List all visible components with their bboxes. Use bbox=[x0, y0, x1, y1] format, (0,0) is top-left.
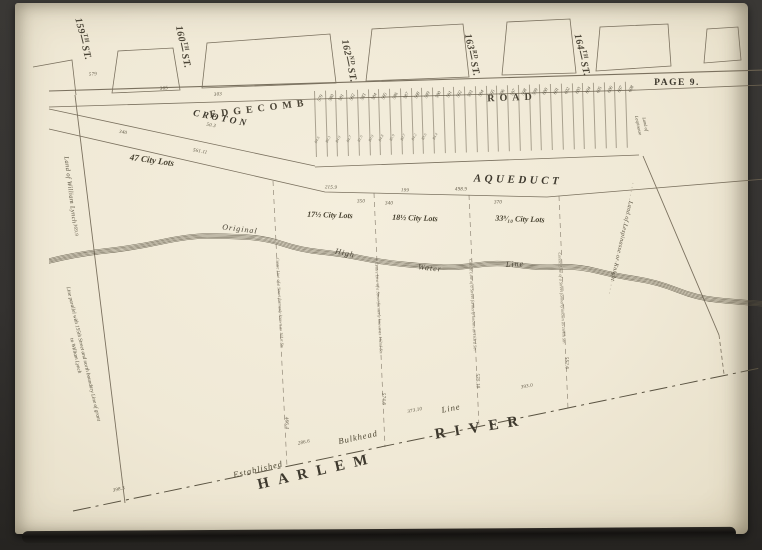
lot-cell: 608 bbox=[625, 81, 638, 147]
city-lots-18: 18½ City Lots bbox=[392, 213, 438, 224]
lot-depth: 84.7 bbox=[345, 134, 353, 142]
high-water-line bbox=[49, 236, 762, 304]
scanned-atlas-page: 159THST. 160THST. 162NDST. 163RDST. 164T… bbox=[0, 0, 762, 550]
lot-number: 596 bbox=[499, 88, 507, 96]
lot-number: 589 bbox=[424, 91, 432, 99]
street-suffix: ST. bbox=[468, 61, 482, 78]
lot-number: 587 bbox=[402, 91, 410, 99]
right-boundary-dashed bbox=[719, 335, 724, 374]
lot-number: 579 bbox=[316, 94, 324, 102]
street-centre-dim-2: 574.6 bbox=[380, 393, 386, 405]
measurement: 350 bbox=[357, 200, 365, 205]
measurement: 340 bbox=[385, 202, 393, 207]
lot-number: 586 bbox=[391, 92, 399, 100]
lot-number: 600 bbox=[541, 87, 549, 95]
lot-number: 605 bbox=[595, 85, 603, 93]
block-outline bbox=[366, 24, 469, 81]
street-centre-dim-4: 552.6 bbox=[563, 357, 569, 369]
block-outline bbox=[202, 34, 336, 88]
lot-number: 582 bbox=[348, 93, 356, 101]
lot-depth: 84.8 bbox=[377, 134, 385, 142]
map-linework bbox=[15, 3, 762, 550]
lot-number: 608 bbox=[627, 85, 635, 93]
block-outline bbox=[596, 24, 671, 71]
lot-number: 603 bbox=[574, 86, 582, 94]
lot-number: 590 bbox=[434, 90, 442, 98]
street-centre-dim-3: 575.10 bbox=[474, 373, 480, 388]
measurement: 498.9 bbox=[455, 188, 467, 193]
city-lots-33: 33⁹⁄₁₀ City Lots bbox=[495, 214, 545, 225]
lynch-boundary-line bbox=[75, 95, 125, 503]
lot-number: 591 bbox=[445, 90, 453, 98]
measurement: 340 bbox=[119, 130, 128, 136]
block-outline bbox=[502, 19, 576, 75]
measurement: 370 bbox=[494, 201, 502, 206]
lot-number: 583 bbox=[359, 92, 367, 100]
block-outline bbox=[112, 48, 180, 93]
measurement: 303 bbox=[214, 92, 223, 98]
lot-depth: 81.6 bbox=[356, 134, 364, 142]
lot-depth: 83.6 bbox=[420, 132, 428, 140]
lot-number: 585 bbox=[381, 92, 389, 100]
lot-strip: 579 84.6 580 80.3 581 84.9 582 84.7 bbox=[314, 81, 638, 157]
street-suffix: ST. bbox=[345, 67, 359, 84]
lot-number: 606 bbox=[606, 85, 614, 93]
lot-depth: 84.9 bbox=[335, 135, 343, 143]
aqueduct-upper-line bbox=[49, 109, 315, 166]
lot-number: 597 bbox=[509, 88, 517, 96]
lot-number: 604 bbox=[584, 86, 592, 94]
lot-number: 588 bbox=[413, 91, 421, 99]
right-boundary-line bbox=[643, 156, 719, 335]
bulkhead-line bbox=[73, 367, 762, 511]
block-outline bbox=[33, 60, 76, 95]
lot-strip-bottom-line bbox=[315, 155, 639, 167]
lot-depth: 84.6 bbox=[313, 135, 321, 143]
lot-number: 598 bbox=[520, 88, 528, 96]
measurement: 215.9 bbox=[325, 185, 337, 190]
measurement: 579 bbox=[89, 72, 98, 78]
water-word-line: Line bbox=[506, 259, 525, 269]
city-lots-17: 17½ City Lots bbox=[307, 210, 353, 221]
street-centre-dim-1: 466.4 bbox=[283, 417, 289, 429]
lot-number: 607 bbox=[617, 85, 625, 93]
lot-number: 601 bbox=[552, 87, 560, 95]
lot-number: 580 bbox=[327, 93, 335, 101]
measurement: 199 bbox=[401, 188, 409, 193]
lot-number: 602 bbox=[563, 86, 571, 94]
map-paper: 159THST. 160THST. 162NDST. 163RDST. 164T… bbox=[15, 3, 748, 534]
street-suffix: ST. bbox=[179, 53, 193, 70]
block-outline bbox=[704, 27, 741, 63]
lot-number: 592 bbox=[456, 90, 464, 98]
lot-number: 595 bbox=[488, 89, 496, 97]
lot-number: 584 bbox=[370, 92, 378, 100]
lot-depth: 84.4 bbox=[431, 132, 439, 140]
lot-number: 594 bbox=[477, 89, 485, 97]
measurement: 365 bbox=[160, 86, 169, 92]
lot-number: 593 bbox=[466, 89, 474, 97]
page-number-label: PAGE 9. bbox=[654, 78, 700, 88]
lot-number: 581 bbox=[338, 93, 346, 101]
lot-depth: 85.9 bbox=[388, 133, 396, 141]
lot-number: 599 bbox=[531, 87, 539, 95]
